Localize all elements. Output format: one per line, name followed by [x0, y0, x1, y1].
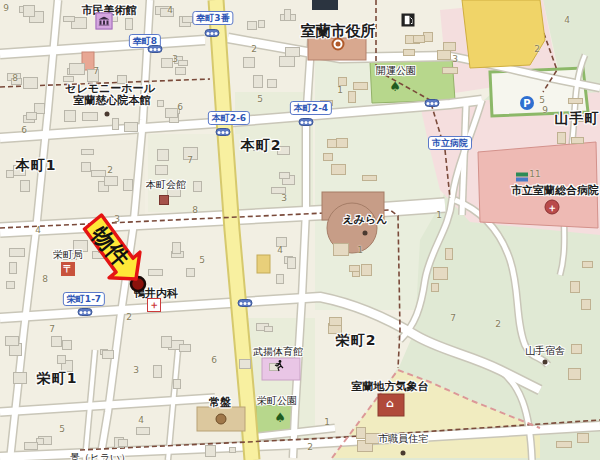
traffic-signal-icon [78, 308, 93, 316]
place-dot-icon [105, 112, 110, 117]
place-dot-icon [543, 360, 548, 365]
block-number: 11 [529, 169, 540, 179]
facility-label: 景（ヒラい） [70, 451, 131, 460]
parking-icon: P [520, 96, 534, 110]
block-number: 2 [107, 165, 113, 175]
traffic-signal-icon [205, 29, 220, 37]
block-number: 8 [12, 73, 18, 83]
block-number: 8 [192, 205, 198, 215]
block-number: 9 [542, 105, 548, 115]
block-number: 1 [357, 245, 363, 255]
post-office-icon: 〒 [61, 262, 75, 276]
traffic-signal-icon [148, 45, 163, 53]
facility-label: 栄町局 [53, 248, 83, 262]
block-number: 2 [495, 319, 501, 329]
block-number: 5 [539, 95, 545, 105]
map-screenshot: 本町1本町2栄町1栄町2山手町市民美術館室蘭市役所セレモニーホール室蘭慈心院本館… [0, 0, 600, 460]
facility-label: 常盤 [209, 395, 231, 410]
block-number: 6 [21, 125, 27, 135]
facility-label: えみらん [342, 212, 387, 227]
facility-label: 室蘭地方気象台 [352, 379, 429, 394]
block-number: 1 [337, 85, 343, 95]
facility-label: 市職員住宅 [378, 432, 428, 446]
weather-station-icon: ⌂ [386, 397, 394, 410]
block-number: 2 [251, 44, 257, 54]
green-blue-stripes-icon [516, 173, 528, 182]
block-number: 7 [450, 313, 456, 323]
block-number: 3 [133, 365, 139, 375]
bus-stop-label: 本町2-6 [208, 111, 250, 125]
block-number: 4 [35, 225, 41, 235]
district-label: 栄町1 [37, 370, 78, 388]
museum-icon [96, 13, 113, 30]
block-number: 4 [138, 415, 144, 425]
block-number: 1 [324, 417, 330, 427]
block-number: 3 [172, 54, 178, 64]
runner-icon [274, 360, 284, 372]
district-label: 山手町 [555, 110, 600, 128]
traffic-signal-icon [238, 299, 253, 307]
facility-label: 武揚体育館 [253, 345, 303, 359]
block-number: 8 [42, 274, 48, 284]
block-number: 4 [167, 5, 173, 15]
block-number: 2 [307, 442, 313, 452]
block-number: 5 [257, 94, 263, 104]
block-number: 4 [564, 15, 570, 25]
meeting-hall-icon [159, 195, 169, 205]
bus-stop-label: 幸町3番 [192, 11, 233, 25]
bus-stop-label: 市立病院 [428, 136, 472, 150]
tree-icon: ♠ [389, 79, 401, 94]
district-label: 栄町2 [336, 332, 377, 350]
tree-icon: ♠ [274, 410, 286, 425]
block-number: 5 [59, 424, 65, 434]
clinic-icon: ＋ [147, 298, 161, 312]
facility-label: 山手宿舎 [525, 344, 565, 358]
block-number: 6 [211, 355, 217, 365]
block-number: 3 [452, 54, 458, 64]
district-label: 本町2 [241, 137, 282, 155]
block-number: 5 [199, 255, 205, 265]
hospital-icon: ＋ [545, 200, 560, 215]
block-number: 1 [436, 210, 442, 220]
fuel-station-icon [402, 14, 415, 27]
block-number: 4 [277, 245, 283, 255]
facility-label: 本町会館 [146, 178, 186, 192]
block-number: 2 [126, 312, 132, 322]
bus-stop-label: 栄町1-7 [63, 292, 105, 306]
block-number: 6 [177, 102, 183, 112]
block-number: 3 [281, 193, 287, 203]
labels-layer: 本町1本町2栄町1栄町2山手町市民美術館室蘭市役所セレモニーホール室蘭慈心院本館… [0, 0, 600, 460]
facility-label: 市立室蘭総合病院 [511, 183, 599, 198]
block-number: 7 [187, 155, 193, 165]
block-number: 3 [114, 214, 120, 224]
place-dot-icon [363, 231, 368, 236]
block-number: 2 [534, 44, 540, 54]
facility-label: 室蘭慈心院本館 [74, 93, 151, 108]
bus-stop-label: 本町2-4 [290, 101, 332, 115]
circle-facility-icon [216, 414, 227, 425]
traffic-signal-icon [425, 99, 440, 107]
facility-label: 開運公園 [376, 64, 416, 78]
block-number: 7 [93, 66, 99, 76]
city-hall-icon [332, 38, 345, 51]
traffic-signal-icon [299, 118, 314, 126]
facility-label: 栄町公園 [257, 394, 297, 408]
block-number: 7 [49, 324, 55, 334]
district-label: 本町1 [16, 157, 57, 175]
block-number: 9 [3, 3, 9, 13]
traffic-signal-icon [216, 128, 231, 136]
place-dot-icon [401, 451, 406, 456]
